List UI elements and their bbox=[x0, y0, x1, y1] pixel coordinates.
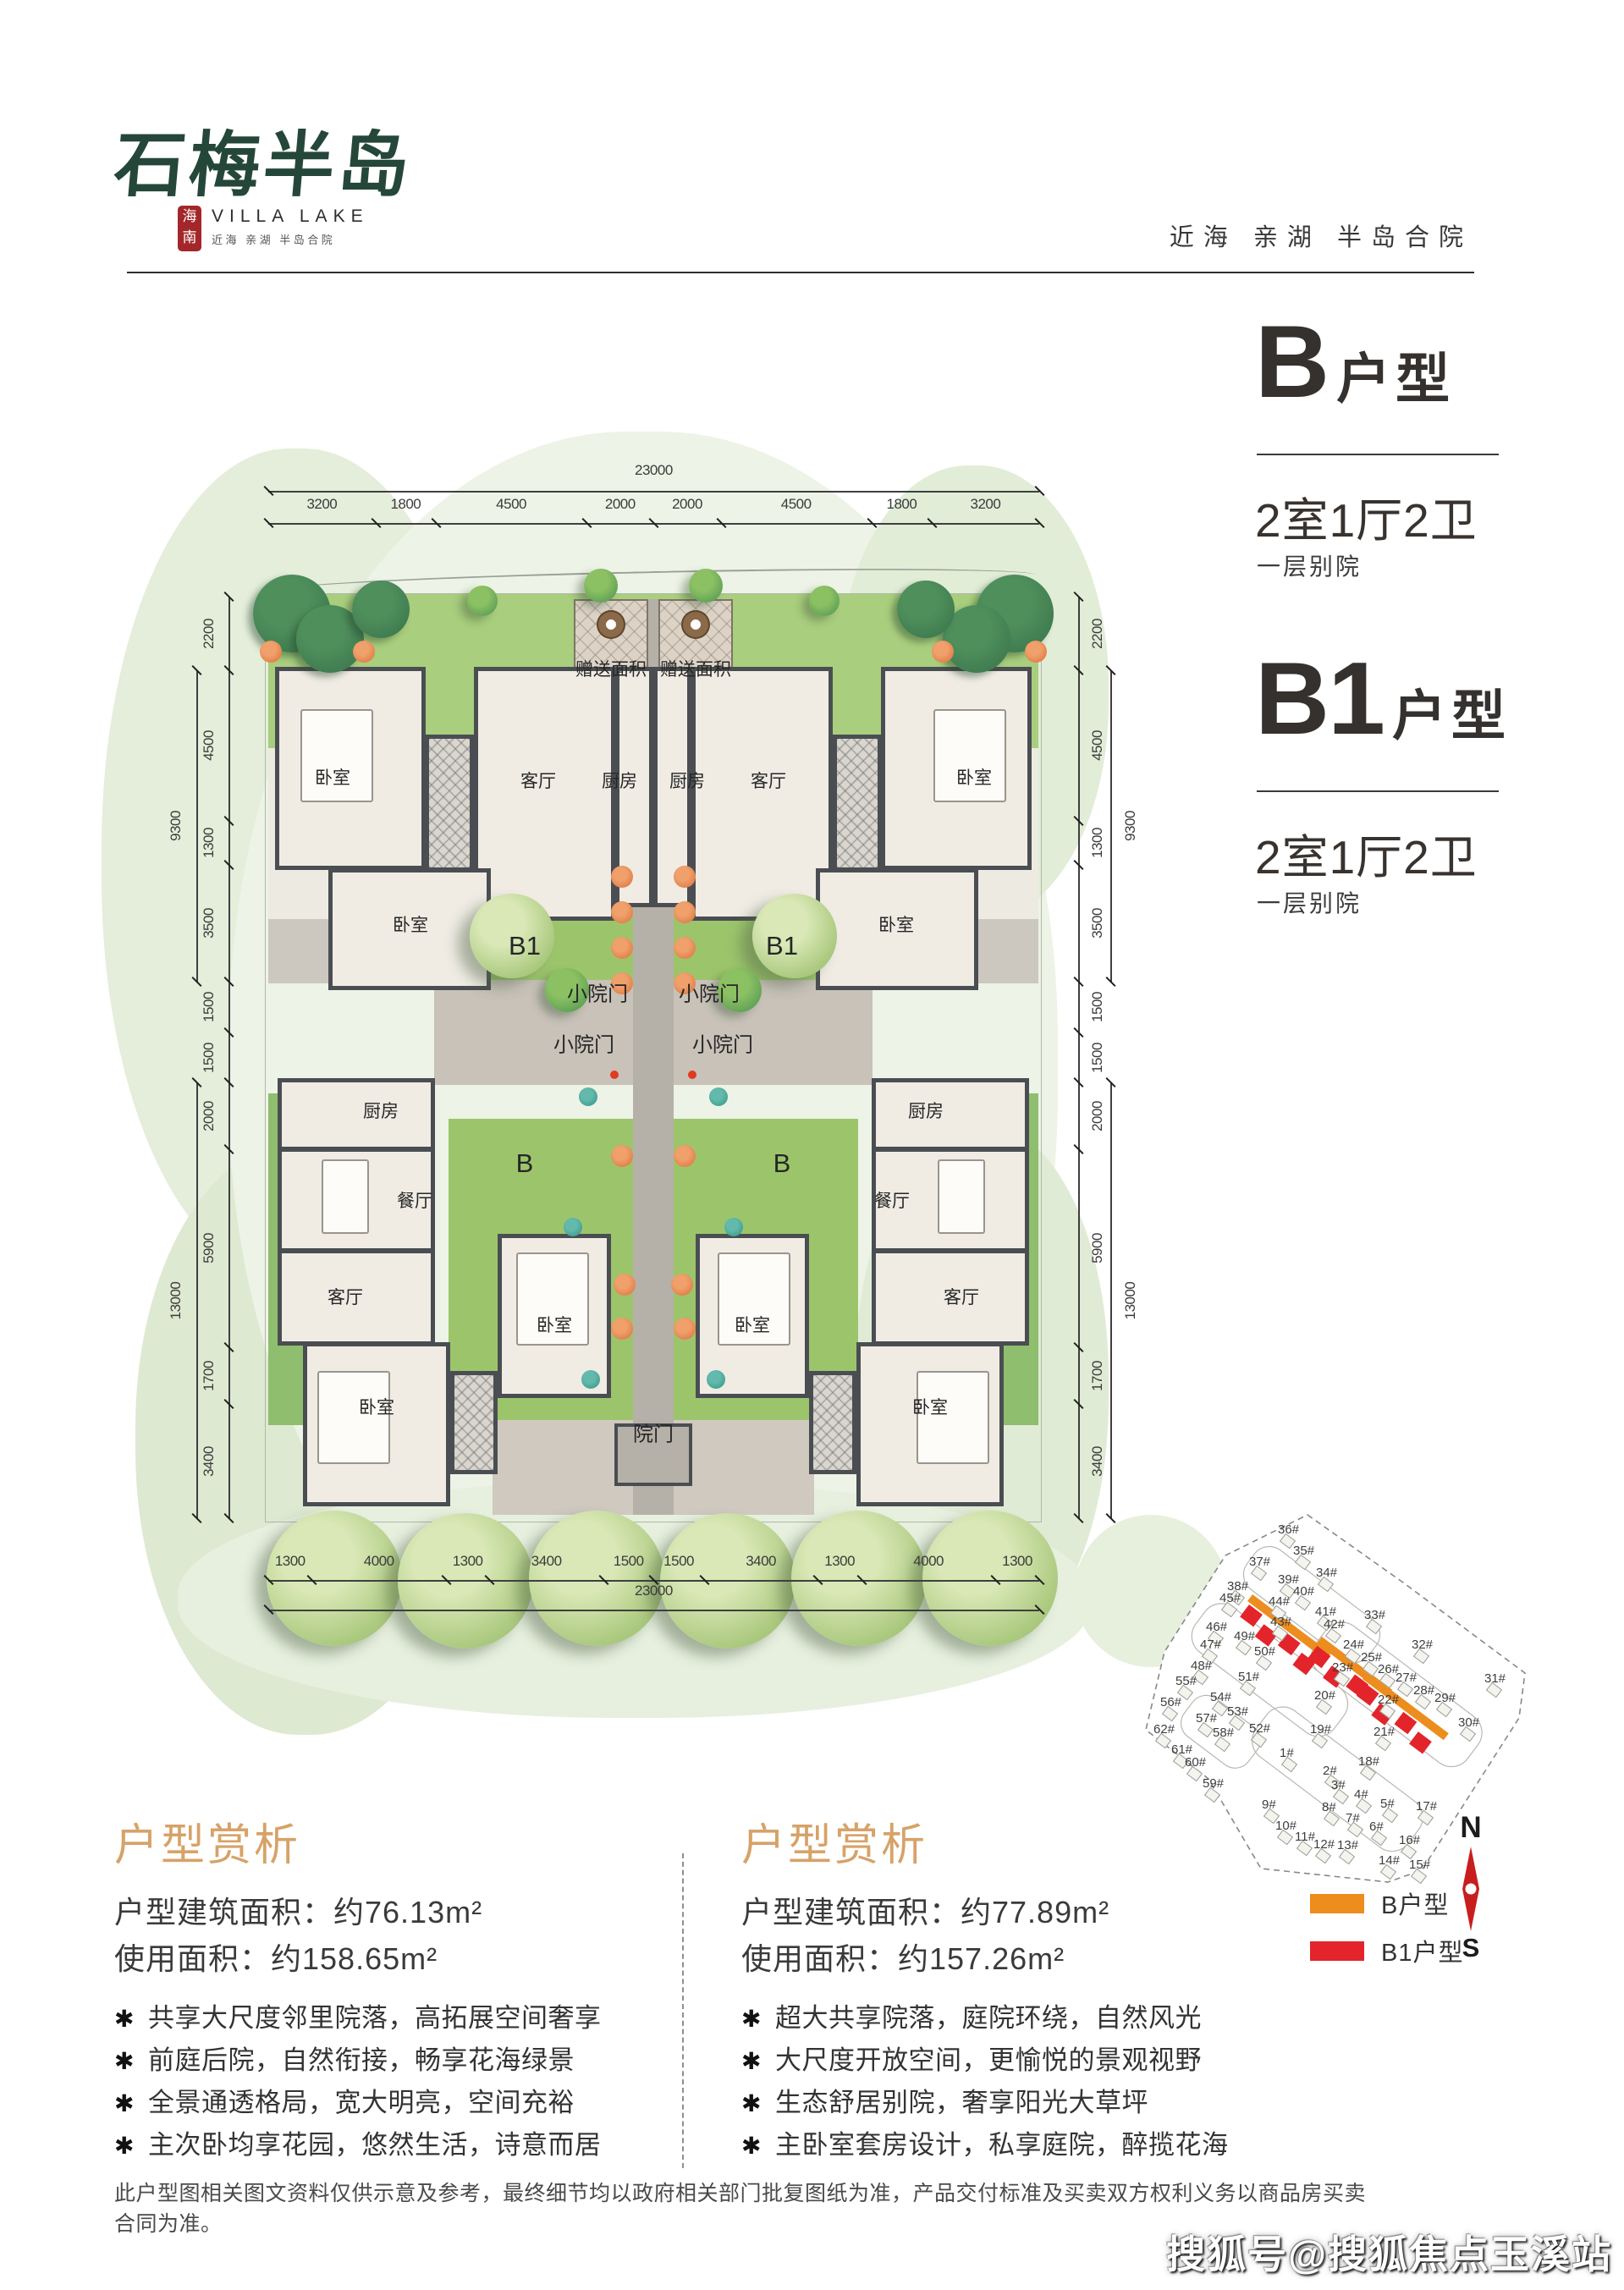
brochure-page: 石梅半岛 海南 VILLA LAKE 近海 亲湖 半岛合院 近海 亲湖 半岛合院… bbox=[0, 0, 1624, 2290]
building-number: 15# bbox=[1409, 1858, 1430, 1872]
unit-b-title-block: B 户型 2室1厅2卫 一层别院 bbox=[1255, 310, 1610, 589]
flower-shrub bbox=[674, 937, 696, 959]
building-number: 60# bbox=[1185, 1755, 1206, 1770]
dimension-label: 1500 bbox=[1089, 1028, 1106, 1087]
dimension-label: 2200 bbox=[1089, 604, 1106, 663]
building-number: 20# bbox=[1314, 1688, 1335, 1703]
building-number: 23# bbox=[1332, 1660, 1353, 1675]
brand-latin-name: VILLA LAKE bbox=[212, 206, 369, 227]
feature-item: ✱前庭后院，自然衔接，畅享花海绿景 bbox=[114, 2040, 673, 2082]
dimension-label: 2000 bbox=[591, 496, 650, 513]
feature-item: ✱主卧室套房设计，私享庭院，醉揽花海 bbox=[741, 2124, 1300, 2166]
flower-shrub bbox=[611, 937, 633, 959]
building-number: 59# bbox=[1203, 1776, 1224, 1791]
building-number: 62# bbox=[1153, 1722, 1175, 1737]
compass: N S bbox=[1444, 1811, 1498, 1963]
room-wall bbox=[833, 735, 882, 872]
dimension-label: 2000 bbox=[201, 1087, 217, 1146]
building-number: 18# bbox=[1358, 1754, 1379, 1769]
legend-label-b: B户型 bbox=[1381, 1885, 1449, 1921]
dimension-label: 1800 bbox=[376, 496, 435, 513]
compass-north-label: N bbox=[1460, 1811, 1481, 1845]
flower-shrub bbox=[260, 641, 282, 663]
room-wall bbox=[450, 1371, 498, 1474]
dimension-line bbox=[268, 491, 1039, 493]
unit-b1-layout: 2室1厅2卫 bbox=[1255, 819, 1478, 887]
feature-text: 前庭后院，自然衔接，畅享花海绿景 bbox=[148, 2040, 575, 2081]
room-label: 厨房 bbox=[602, 768, 637, 793]
room-label: 卧室 bbox=[912, 1394, 948, 1419]
dimension-label: 1700 bbox=[1089, 1346, 1106, 1406]
analysis-build-area: 户型建筑面积：约77.89m² bbox=[741, 1889, 1300, 1935]
dimension-line bbox=[196, 670, 198, 982]
legend-row-b: B户型 bbox=[1310, 1885, 1463, 1921]
asterisk-bullet-icon: ✱ bbox=[114, 1998, 135, 2040]
dimension-label: 3400 bbox=[731, 1553, 790, 1570]
building-number: 5# bbox=[1380, 1797, 1395, 1811]
building-number: 36# bbox=[1278, 1522, 1299, 1537]
tree bbox=[897, 581, 955, 638]
dimension-line bbox=[1110, 1082, 1112, 1518]
patio-table bbox=[681, 610, 710, 639]
building-number: 43# bbox=[1270, 1615, 1291, 1629]
dimension-label: 5900 bbox=[1089, 1219, 1106, 1278]
asterisk-bullet-icon: ✱ bbox=[741, 2040, 762, 2082]
dimension-label: 4500 bbox=[1089, 716, 1106, 775]
area-label: 院门 bbox=[633, 1417, 674, 1447]
patio-table bbox=[597, 610, 625, 639]
feature-item: ✱大尺度开放空间，更愉悦的景观视野 bbox=[741, 2040, 1300, 2082]
flower-shrub bbox=[611, 901, 633, 923]
red-marker bbox=[610, 1071, 619, 1079]
shrub bbox=[724, 1218, 743, 1236]
unit-b-layout: 2室1厅2卫 bbox=[1255, 482, 1478, 550]
furniture bbox=[938, 1159, 985, 1234]
watermark: 搜狐号@搜狐焦点玉溪站 bbox=[1166, 2224, 1612, 2280]
tree bbox=[267, 1511, 402, 1646]
feature-text: 生态舒居别院，奢享阳光大草坪 bbox=[775, 2082, 1148, 2123]
building-number: 14# bbox=[1379, 1853, 1400, 1868]
building-number: 51# bbox=[1238, 1670, 1259, 1684]
unit-b-note: 一层别院 bbox=[1257, 548, 1362, 582]
feature-text: 全景通透格局，宽大明亮，空间充裕 bbox=[148, 2082, 575, 2123]
building-number: 7# bbox=[1346, 1811, 1360, 1825]
analysis-usable-area: 使用面积：约158.65m² bbox=[114, 1935, 673, 1982]
building-number: 44# bbox=[1269, 1594, 1290, 1609]
map-legend: B户型 B1户型 bbox=[1310, 1885, 1463, 1968]
asterisk-bullet-icon: ✱ bbox=[114, 2083, 135, 2124]
feature-item: ✱超大共享院落，庭院环绕，自然风光 bbox=[741, 1997, 1300, 2040]
analysis-title: 户型赏析 bbox=[741, 1821, 1300, 1870]
legend-swatch-b bbox=[1310, 1894, 1364, 1913]
red-marker bbox=[688, 1071, 696, 1079]
building-number: 16# bbox=[1399, 1833, 1420, 1847]
room-label: 厨房 bbox=[669, 768, 705, 793]
building-number: 37# bbox=[1249, 1555, 1270, 1569]
dimension-label: 3400 bbox=[201, 1432, 217, 1491]
unit-b-letter: B bbox=[1255, 310, 1328, 413]
building-number: 12# bbox=[1313, 1837, 1335, 1852]
area-label: B1 bbox=[766, 931, 798, 961]
building-number: 3# bbox=[1331, 1778, 1346, 1792]
dimension-label: 1500 bbox=[201, 1028, 217, 1087]
asterisk-bullet-icon: ✱ bbox=[114, 2125, 135, 2166]
building-number: 31# bbox=[1484, 1671, 1506, 1686]
building-number: 52# bbox=[1249, 1721, 1270, 1736]
building-number: 33# bbox=[1364, 1608, 1385, 1622]
furniture bbox=[322, 1159, 369, 1234]
dimension-label: 3200 bbox=[292, 496, 351, 513]
analysis-usable-area: 使用面积：约157.26m² bbox=[741, 1935, 1300, 1982]
flower-shrub bbox=[674, 1318, 696, 1340]
feature-item: ✱共享大尺度邻里院落，高拓展空间奢享 bbox=[114, 1997, 673, 2040]
dimension-label: 23000 bbox=[624, 462, 683, 479]
building-number: 58# bbox=[1213, 1726, 1234, 1740]
room-label: 卧室 bbox=[537, 1312, 572, 1337]
building-number: 53# bbox=[1227, 1704, 1248, 1719]
building-number: 54# bbox=[1210, 1690, 1231, 1704]
dimension-label: 1300 bbox=[810, 1553, 869, 1570]
building-number: 21# bbox=[1374, 1725, 1395, 1739]
header-tagline: 近海 亲湖 半岛合院 bbox=[1134, 217, 1473, 253]
flower-shrub bbox=[614, 1274, 636, 1296]
flower-shrub bbox=[1025, 641, 1047, 663]
dimension-line bbox=[1078, 597, 1080, 1518]
building-number: 22# bbox=[1378, 1693, 1399, 1707]
feature-item: ✱全景通透格局，宽大明亮，空间充裕 bbox=[114, 2082, 673, 2124]
flower-shrub bbox=[674, 866, 696, 888]
tree bbox=[584, 569, 618, 603]
room-label: 卧室 bbox=[393, 911, 428, 937]
building-number: 8# bbox=[1322, 1800, 1336, 1814]
dimension-label: 1300 bbox=[1089, 813, 1106, 873]
building-number: 48# bbox=[1191, 1659, 1212, 1673]
dimension-label: 2000 bbox=[1089, 1087, 1106, 1146]
shrub bbox=[564, 1218, 582, 1236]
building-number: 50# bbox=[1254, 1644, 1275, 1659]
asterisk-bullet-icon: ✱ bbox=[114, 2040, 135, 2082]
legend-row-b1: B1户型 bbox=[1310, 1933, 1463, 1968]
flower-shrub bbox=[611, 866, 633, 888]
building-number: 13# bbox=[1337, 1838, 1358, 1852]
feature-text: 共享大尺度邻里院落，高拓展空间奢享 bbox=[148, 1997, 602, 2039]
dimension-label: 9300 bbox=[168, 796, 184, 856]
feature-list: ✱超大共享院落，庭院环绕，自然风光✱大尺度开放空间，更愉悦的景观视野✱生态舒居别… bbox=[741, 1997, 1300, 2166]
dimension-label: 1300 bbox=[261, 1553, 320, 1570]
room-label: 餐厅 bbox=[397, 1187, 432, 1213]
room-label: 卧室 bbox=[956, 764, 992, 790]
dimension-label: 3500 bbox=[201, 894, 217, 953]
building-number: 4# bbox=[1354, 1787, 1368, 1802]
building-number: 29# bbox=[1434, 1691, 1456, 1705]
building-number: 17# bbox=[1416, 1799, 1437, 1814]
room-wall bbox=[809, 1371, 856, 1474]
building-number: 32# bbox=[1412, 1638, 1433, 1652]
area-label: B1 bbox=[509, 931, 541, 961]
area-label: 小院门 bbox=[679, 977, 740, 1007]
dimension-label: 9300 bbox=[1122, 796, 1139, 856]
room-label: 厨房 bbox=[908, 1098, 944, 1123]
dimension-label: 1500 bbox=[649, 1553, 708, 1570]
dimension-line bbox=[228, 597, 230, 1518]
building-number: 2# bbox=[1323, 1764, 1337, 1778]
building-number: 55# bbox=[1175, 1674, 1197, 1688]
tree bbox=[529, 1511, 664, 1646]
compass-south-label: S bbox=[1462, 1933, 1480, 1963]
dimension-label: 1700 bbox=[201, 1346, 217, 1406]
dimension-label: 3400 bbox=[1089, 1432, 1106, 1491]
building-number: 57# bbox=[1196, 1711, 1217, 1726]
room-wall bbox=[278, 1078, 435, 1151]
room-label: 卧室 bbox=[735, 1312, 770, 1337]
feature-text: 主次卧均享花园，悠然生活，诗意而居 bbox=[148, 2124, 602, 2166]
shrub bbox=[579, 1087, 597, 1106]
dimension-label: 4500 bbox=[767, 496, 826, 513]
feature-text: 主卧室套房设计，私享庭院，醉揽花海 bbox=[775, 2124, 1229, 2166]
feature-text: 超大共享院落，庭院环绕，自然风光 bbox=[775, 1997, 1202, 2039]
dimension-label: 3400 bbox=[517, 1553, 576, 1570]
brand-calligraphy: 石梅半岛 bbox=[111, 108, 418, 211]
area-label: 小院门 bbox=[692, 1028, 753, 1058]
dimension-line bbox=[1110, 670, 1112, 982]
building-number: 1# bbox=[1280, 1746, 1294, 1760]
room-label: 客厅 bbox=[944, 1284, 979, 1309]
unit-b-divider bbox=[1257, 454, 1499, 455]
feature-item: ✱生态舒居别院，奢享阳光大草坪 bbox=[741, 2082, 1300, 2124]
room-label: 客厅 bbox=[328, 1284, 363, 1309]
building-number: 30# bbox=[1458, 1715, 1479, 1730]
analysis-title: 户型赏析 bbox=[114, 1821, 673, 1870]
dimension-label: 1300 bbox=[988, 1553, 1047, 1570]
unit-b-suffix: 户型 bbox=[1328, 352, 1455, 413]
flower-shrub bbox=[671, 1274, 693, 1296]
area-label: 赠送面积 bbox=[575, 656, 647, 681]
tree bbox=[352, 581, 410, 638]
tree bbox=[467, 586, 498, 616]
unit-b1-letter: B1 bbox=[1255, 647, 1384, 750]
brand-seal: 海南 bbox=[178, 206, 201, 251]
dimension-label: 5900 bbox=[201, 1219, 217, 1278]
area-label: B bbox=[773, 1148, 791, 1179]
dimension-label: 1800 bbox=[872, 496, 931, 513]
building-number: 35# bbox=[1293, 1544, 1314, 1558]
analysis-build-area: 户型建筑面积：约76.13m² bbox=[114, 1889, 673, 1935]
tree bbox=[809, 586, 840, 616]
flower-shrub bbox=[611, 1145, 633, 1167]
flower-shrub bbox=[674, 901, 696, 923]
area-label: 小院门 bbox=[553, 1028, 614, 1058]
feature-item: ✱主次卧均享花园，悠然生活，诗意而居 bbox=[114, 2124, 673, 2166]
dimension-label: 1300 bbox=[201, 813, 217, 873]
building-number: 6# bbox=[1369, 1819, 1384, 1834]
compass-needle-icon bbox=[1456, 1845, 1485, 1933]
dimension-label: 3200 bbox=[955, 496, 1015, 513]
room-wall bbox=[872, 1078, 1029, 1151]
room-wall bbox=[425, 735, 474, 872]
floor-plan: 卧室客厅厨房厨房客厅卧室卧室卧室厨房厨房餐厅餐厅客厅客厅卧室卧室卧室卧室赠送面积… bbox=[127, 398, 1202, 1650]
building-number: 28# bbox=[1413, 1683, 1434, 1698]
room-label: 卧室 bbox=[315, 764, 350, 790]
dimension-label: 2000 bbox=[658, 496, 717, 513]
unit-b1-divider bbox=[1257, 790, 1499, 792]
building-number: 34# bbox=[1316, 1566, 1337, 1580]
flower-shrub bbox=[611, 1318, 633, 1340]
room-label: 卧室 bbox=[359, 1394, 394, 1419]
dimension-label: 2200 bbox=[201, 604, 217, 663]
area-label: 小院门 bbox=[567, 977, 628, 1007]
shrub bbox=[707, 1370, 725, 1389]
dimension-label: 4500 bbox=[482, 496, 541, 513]
building-number: 40# bbox=[1293, 1584, 1314, 1599]
room-wall bbox=[474, 667, 615, 921]
header-divider bbox=[127, 272, 1474, 273]
building-number: 45# bbox=[1219, 1591, 1241, 1605]
asterisk-bullet-icon: ✱ bbox=[741, 2125, 762, 2166]
building-number: 9# bbox=[1262, 1797, 1276, 1812]
dimension-label: 1300 bbox=[438, 1553, 498, 1570]
building-number: 56# bbox=[1160, 1695, 1181, 1709]
asterisk-bullet-icon: ✱ bbox=[741, 1998, 762, 2040]
dimension-label: 4000 bbox=[899, 1553, 958, 1570]
dimension-label: 23000 bbox=[624, 1583, 683, 1599]
feature-list: ✱共享大尺度邻里院落，高拓展空间奢享✱前庭后院，自然衔接，畅享花海绿景✱全景通透… bbox=[114, 1997, 673, 2166]
room-label: 客厅 bbox=[520, 768, 556, 793]
room-wall bbox=[691, 667, 833, 921]
dimension-label: 13000 bbox=[1122, 1271, 1139, 1330]
unit-b1-title-block: B1 户型 2室1厅2卫 一层别院 bbox=[1255, 647, 1610, 926]
area-label: B bbox=[516, 1148, 534, 1179]
flower-shrub bbox=[932, 641, 954, 663]
building-number: 42# bbox=[1324, 1617, 1345, 1632]
analysis-column-divider bbox=[682, 1853, 684, 2168]
dimension-line bbox=[196, 1082, 198, 1518]
building-number: 49# bbox=[1234, 1629, 1255, 1643]
shrub bbox=[581, 1370, 600, 1389]
brand-subtitle: 近海 亲湖 半岛合院 bbox=[212, 231, 335, 247]
area-label: 赠送面积 bbox=[660, 656, 731, 681]
dimension-label: 4500 bbox=[201, 716, 217, 775]
dimension-label: 13000 bbox=[168, 1271, 184, 1330]
dimension-line bbox=[268, 1610, 1039, 1611]
building-number: 19# bbox=[1310, 1722, 1331, 1737]
flower-shrub bbox=[674, 1145, 696, 1167]
seal-char-bottom: 南 bbox=[183, 229, 197, 245]
legend-swatch-b1 bbox=[1310, 1941, 1364, 1961]
room-label: 客厅 bbox=[751, 768, 786, 793]
dimension-label: 4000 bbox=[350, 1553, 409, 1570]
building-number: 47# bbox=[1200, 1638, 1221, 1652]
seal-char-top: 海 bbox=[183, 208, 197, 224]
room-label: 厨房 bbox=[363, 1098, 399, 1123]
feature-text: 大尺度开放空间，更愉悦的景观视野 bbox=[775, 2040, 1202, 2081]
unit-b1-suffix: 户型 bbox=[1384, 689, 1511, 750]
tree bbox=[689, 569, 723, 603]
asterisk-bullet-icon: ✱ bbox=[741, 2083, 762, 2124]
shrub bbox=[709, 1087, 728, 1106]
room-label: 餐厅 bbox=[874, 1187, 910, 1213]
analysis-section-b1: 户型赏析 户型建筑面积：约77.89m² 使用面积：约157.26m² ✱超大共… bbox=[741, 1821, 1300, 2166]
building-number: 46# bbox=[1206, 1620, 1227, 1634]
flower-shrub bbox=[353, 641, 375, 663]
analysis-section-b: 户型赏析 户型建筑面积：约76.13m² 使用面积：约158.65m² ✱共享大… bbox=[114, 1821, 673, 2166]
dimension-label: 3500 bbox=[1089, 894, 1106, 953]
room-label: 卧室 bbox=[878, 911, 914, 937]
unit-b1-note: 一层别院 bbox=[1257, 885, 1362, 919]
